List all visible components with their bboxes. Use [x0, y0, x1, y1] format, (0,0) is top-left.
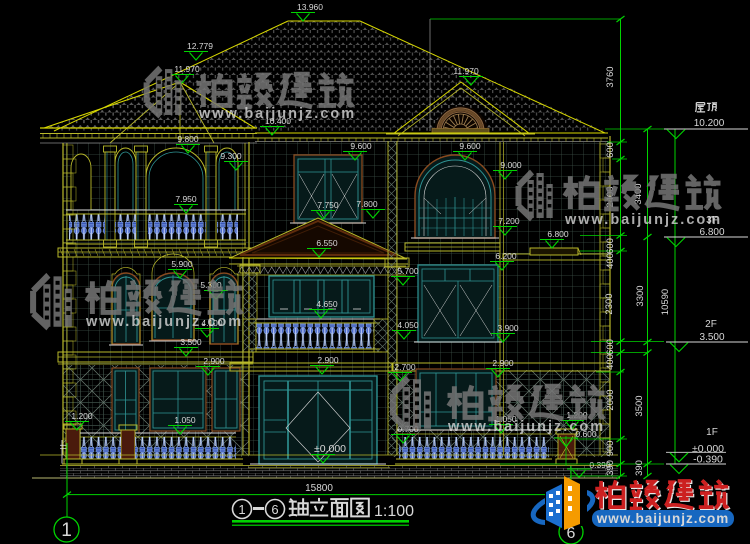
- svg-text:1:100: 1:100: [374, 503, 414, 520]
- svg-text:15800: 15800: [305, 483, 333, 494]
- svg-text:www.baijunjz.com: www.baijunjz.com: [447, 419, 605, 435]
- svg-text:10.200: 10.200: [694, 118, 725, 129]
- svg-text:600: 600: [605, 339, 616, 355]
- svg-text:±0.000: ±0.000: [314, 443, 346, 455]
- svg-text:7.750: 7.750: [317, 200, 339, 210]
- svg-text:600: 600: [605, 238, 616, 254]
- svg-text:4.650: 4.650: [316, 299, 338, 309]
- svg-text:9.600: 9.600: [459, 141, 481, 151]
- svg-text:1F: 1F: [706, 427, 718, 438]
- svg-text:9.300: 9.300: [220, 151, 242, 161]
- svg-text:13.960: 13.960: [297, 2, 323, 12]
- svg-text:11.970: 11.970: [174, 64, 200, 74]
- svg-text:7.800: 7.800: [356, 199, 378, 209]
- svg-text:3.500: 3.500: [699, 332, 724, 343]
- svg-text:3760: 3760: [605, 66, 616, 87]
- svg-text:5.700: 5.700: [397, 266, 419, 276]
- svg-text:2.900: 2.900: [492, 358, 514, 368]
- svg-text:6.800: 6.800: [699, 227, 724, 238]
- svg-text:6.200: 6.200: [495, 251, 517, 261]
- svg-text:5.900: 5.900: [171, 259, 193, 269]
- svg-text:2F: 2F: [705, 319, 717, 330]
- svg-text:1.200: 1.200: [71, 411, 93, 421]
- svg-text:9.000: 9.000: [500, 160, 522, 170]
- svg-text:-0.390: -0.390: [693, 454, 723, 466]
- svg-text:www.baijunjz.com: www.baijunjz.com: [596, 511, 730, 526]
- svg-text:www.baijunjz.com: www.baijunjz.com: [564, 212, 722, 228]
- svg-text:2300: 2300: [604, 293, 615, 314]
- svg-text:6.800: 6.800: [547, 229, 569, 239]
- svg-text:390: 390: [634, 460, 645, 476]
- svg-text:7.200: 7.200: [498, 216, 520, 226]
- svg-text:2.700: 2.700: [394, 362, 416, 372]
- svg-text:3300: 3300: [635, 285, 646, 306]
- svg-text:3.900: 3.900: [497, 323, 519, 333]
- svg-text:3500: 3500: [634, 395, 645, 416]
- svg-text:4.050: 4.050: [397, 320, 419, 330]
- svg-text:6: 6: [271, 502, 278, 517]
- svg-text:2.900: 2.900: [203, 356, 225, 366]
- svg-text:2.900: 2.900: [317, 355, 339, 365]
- svg-text:9.800: 9.800: [177, 134, 199, 144]
- svg-text:1: 1: [61, 520, 72, 541]
- svg-text:2000: 2000: [605, 389, 616, 410]
- svg-text:9.600: 9.600: [350, 141, 372, 151]
- svg-text:10590: 10590: [660, 289, 671, 315]
- svg-text:390: 390: [605, 460, 616, 476]
- svg-text:11.970: 11.970: [453, 66, 479, 76]
- svg-text:12.779: 12.779: [187, 41, 213, 51]
- svg-text:6.550: 6.550: [316, 238, 338, 248]
- svg-text:3.500: 3.500: [180, 337, 202, 347]
- svg-text:1: 1: [238, 502, 245, 517]
- svg-text:400: 400: [605, 253, 616, 269]
- svg-text:www.baijunjz.com: www.baijunjz.com: [198, 106, 356, 122]
- svg-text:900: 900: [605, 441, 616, 457]
- svg-text:400: 400: [605, 354, 616, 370]
- svg-text:1.050: 1.050: [174, 415, 196, 425]
- svg-text:7.950: 7.950: [175, 194, 197, 204]
- svg-text:www.baijunjz.com: www.baijunjz.com: [85, 314, 243, 330]
- svg-text:600: 600: [605, 142, 616, 158]
